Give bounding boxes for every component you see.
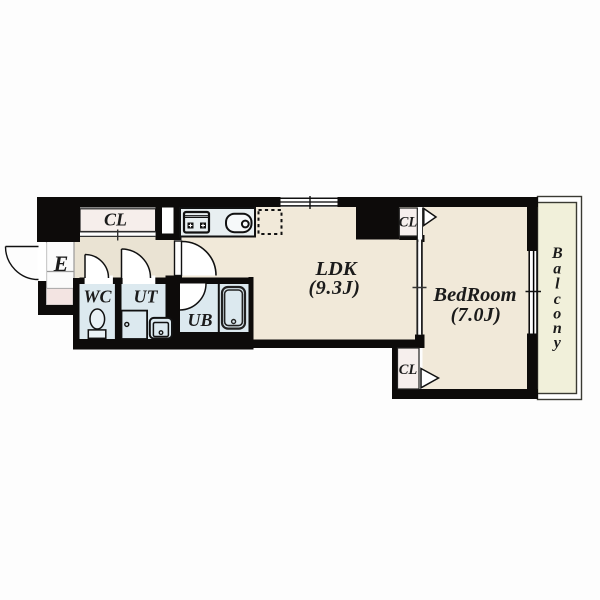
svg-text:CL: CL — [399, 215, 418, 231]
svg-text:(7.0J): (7.0J) — [451, 304, 502, 326]
svg-text:CL: CL — [399, 362, 418, 378]
svg-text:BedRoom: BedRoom — [432, 284, 516, 306]
svg-text:(9.3J): (9.3J) — [309, 277, 361, 299]
svg-text:y: y — [552, 335, 562, 352]
svg-text:l: l — [555, 276, 560, 293]
svg-text:CL: CL — [104, 210, 127, 230]
svg-text:B: B — [551, 245, 563, 262]
svg-text:UB: UB — [187, 310, 212, 330]
svg-text:E: E — [53, 251, 69, 276]
svg-text:WC: WC — [83, 287, 112, 307]
svg-text:UT: UT — [134, 287, 159, 307]
